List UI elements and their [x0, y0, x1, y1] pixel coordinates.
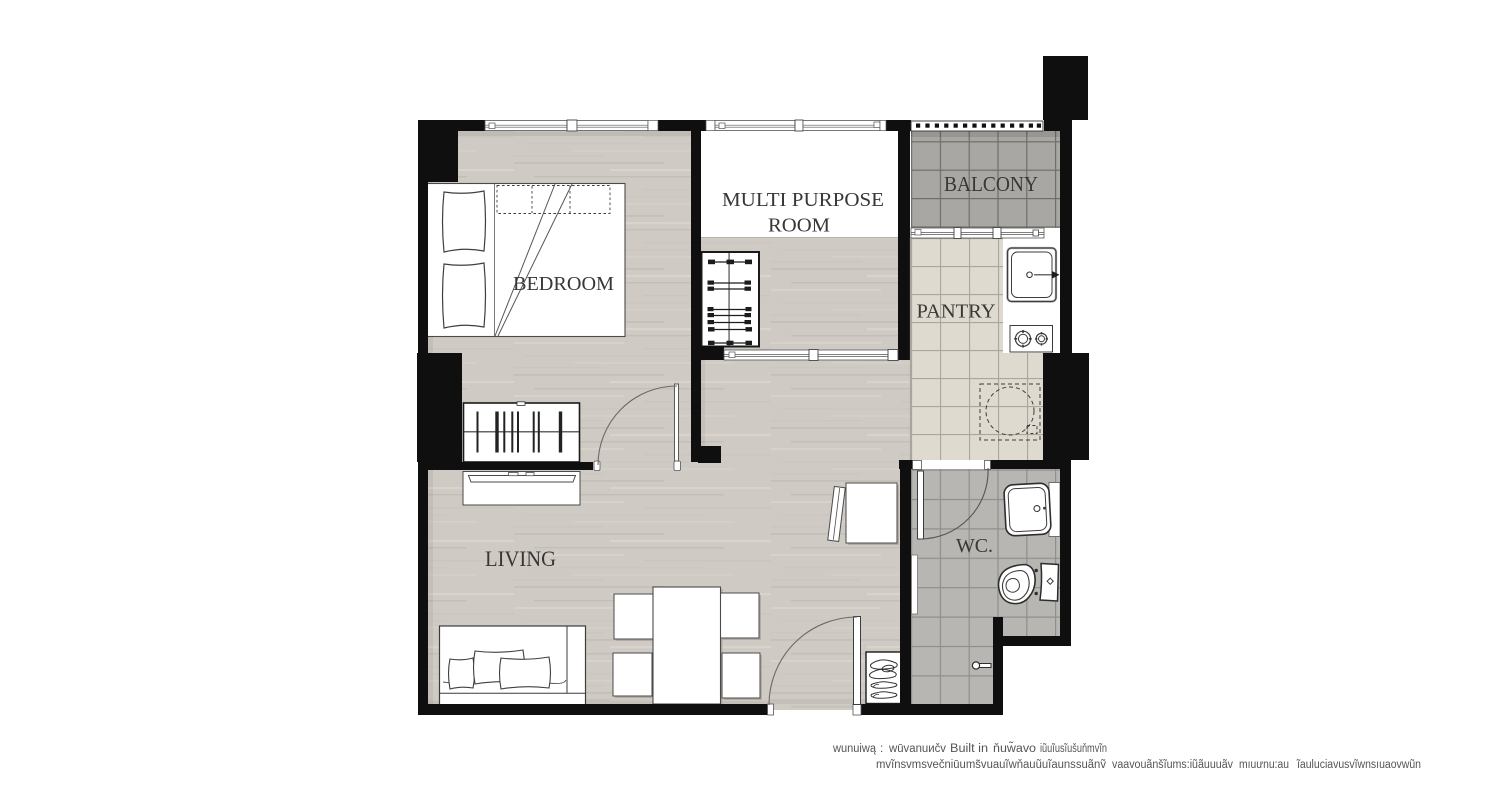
svg-text:iũuĩusĩušuňmvĩn: iũuĩusĩušuňmvĩn: [1040, 743, 1107, 755]
svg-text:ROOM: ROOM: [768, 215, 830, 237]
svg-text:BEDROOM: BEDROOM: [513, 273, 614, 295]
svg-text:vaavouãnšĩums:iũãuuuãv: vaavouãnšĩums:iũãuuuãv: [1112, 759, 1233, 771]
svg-text::: :: [880, 743, 883, 755]
svg-text:mvĩnsvmsvečniūums̃vuauĩwňauũuĩ: mvĩnsvmsvečniūums̃vuauĩwňauũuĩaunssuãnṽ: [876, 759, 1106, 771]
svg-text:mıuưnu:au: mıuưnu:au: [1239, 759, 1289, 771]
svg-text:ĩauluciavusvĩwnsıuaovwũn: ĩauluciavusvĩwnsıuaovwũn: [1296, 759, 1421, 771]
svg-text:WC.: WC.: [956, 535, 993, 557]
svg-text:PANTRY: PANTRY: [917, 301, 996, 323]
svg-text:ňuw̃avо: ňuw̃avо: [993, 742, 1036, 755]
svg-text:BALCONY: BALCONY: [944, 172, 1038, 196]
svg-text:MULTI PURPOSE: MULTI PURPOSE: [722, 189, 884, 211]
svg-text:LIVING: LIVING: [485, 546, 556, 571]
svg-text:Built in: Built in: [950, 743, 988, 755]
svg-text:wūvanuиčv: wūvanuиčv: [888, 743, 946, 755]
svg-text:wunuiwą: wunuiwą: [832, 743, 877, 755]
